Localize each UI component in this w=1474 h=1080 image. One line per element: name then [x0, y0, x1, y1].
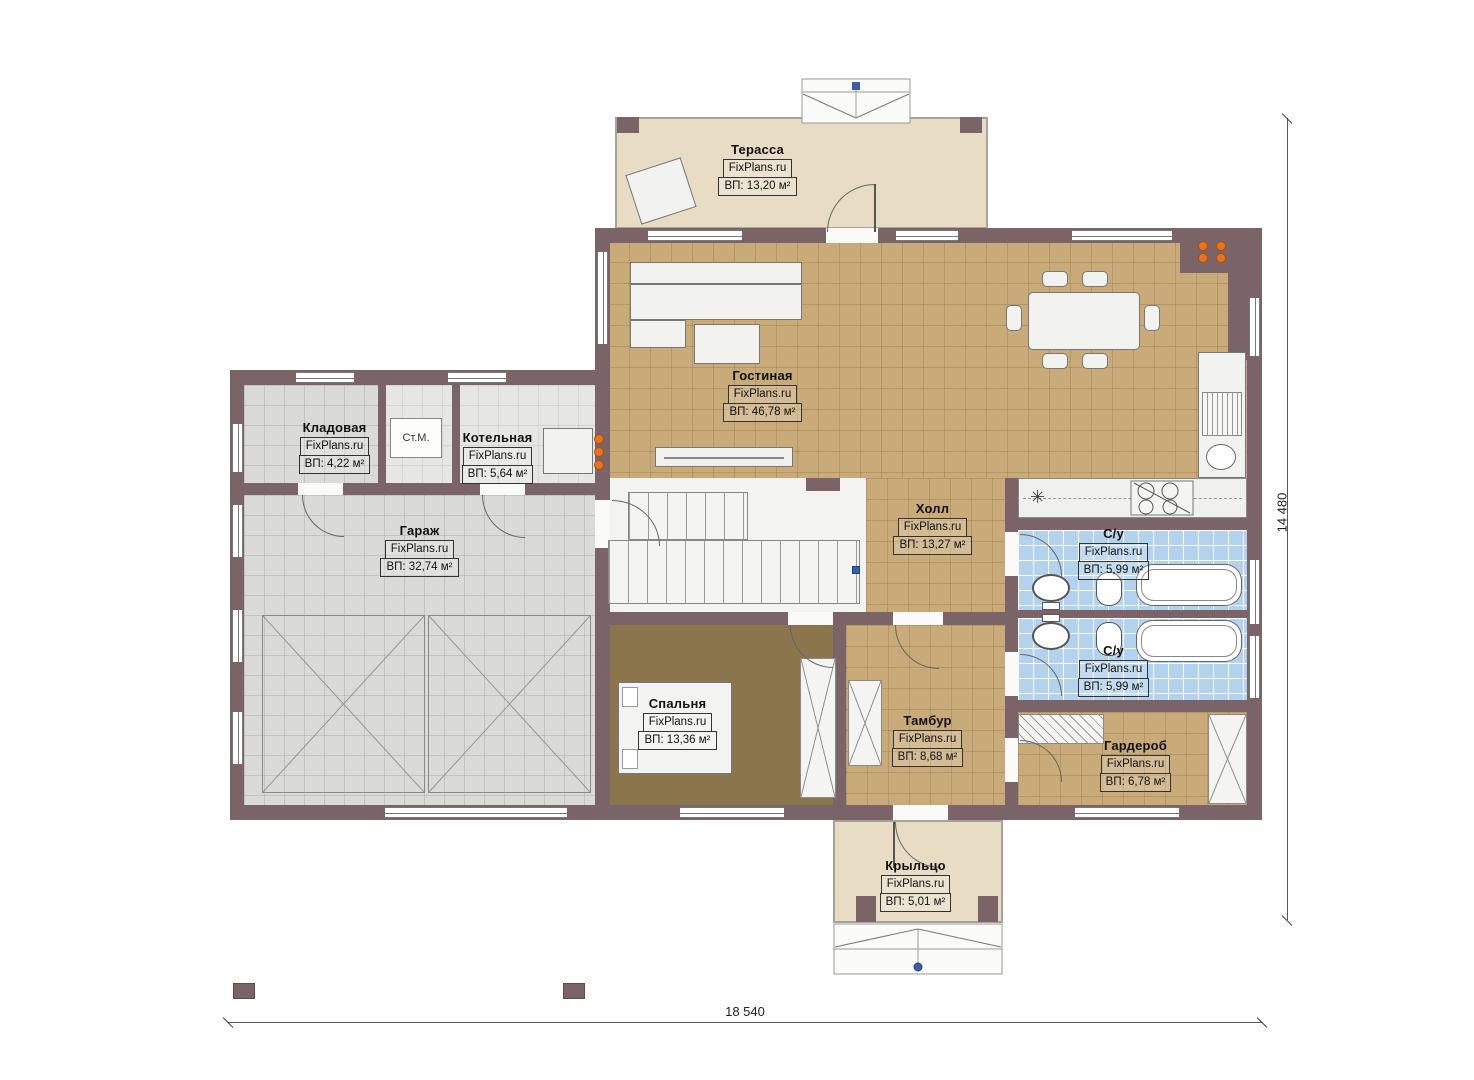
- room-name: Тамбур: [903, 713, 951, 728]
- window: [296, 372, 354, 383]
- area-box: ВП: 6,78 м²: [1100, 773, 1172, 792]
- dining-chair: [1042, 271, 1068, 287]
- window: [597, 252, 608, 344]
- wall-wardrobe-top: [1018, 700, 1247, 712]
- area-box: ВП: 46,78 м²: [723, 403, 801, 422]
- window: [448, 372, 506, 383]
- window: [648, 230, 742, 241]
- brand-box: FixPlans.ru: [1079, 543, 1149, 562]
- brand-box: FixPlans.ru: [463, 447, 533, 466]
- heating-dot: [594, 460, 604, 470]
- door-gap-entrance: [893, 805, 948, 820]
- room-label-living: Гостиная FixPlans.ru ВП: 46,78 м²: [700, 368, 825, 422]
- room-name: С/у: [1103, 643, 1124, 658]
- window: [1249, 560, 1260, 624]
- garage-spot-left: [262, 615, 425, 793]
- toilet-tank: [1042, 614, 1060, 622]
- area-box: ВП: 5,99 м²: [1078, 678, 1150, 697]
- porch-steps: [833, 923, 1003, 975]
- tv-console: [655, 447, 793, 467]
- area-box: ВП: 5,01 м²: [880, 893, 952, 912]
- window: [1072, 230, 1172, 241]
- door-gap-vestibule: [893, 612, 943, 625]
- dimension-width-label: 18 540: [228, 1004, 1262, 1019]
- terrace-steps: [801, 78, 911, 124]
- coffee-table: [694, 324, 760, 364]
- room-label-wc1: С/у FixPlans.ru ВП: 5,99 м²: [1056, 526, 1171, 580]
- room-name: Крыльцо: [885, 858, 946, 873]
- brand-box: FixPlans.ru: [723, 159, 793, 178]
- wall-living-stub: [806, 478, 840, 491]
- dining-chair: [1082, 353, 1108, 369]
- dimension-line-bottom: [228, 1022, 1262, 1023]
- window: [232, 505, 243, 557]
- room-label-vestibule: Тамбур FixPlans.ru ВП: 8,68 м²: [870, 713, 985, 767]
- room-name: Холл: [916, 501, 949, 516]
- wardrobe-cabinet: [1208, 714, 1247, 804]
- room-label-porch: Крыльцо FixPlans.ru ВП: 5,01 м²: [858, 858, 973, 912]
- garage-door: [385, 807, 567, 818]
- area-box: ВП: 8,68 м²: [892, 748, 964, 767]
- washing-machine-label: Ст.М.: [402, 432, 429, 444]
- wall-wing-top: [230, 370, 608, 385]
- dishwasher: [1202, 392, 1242, 436]
- dimension-height-label: 14 480: [1275, 483, 1290, 543]
- room-label-wardrobe: Гардероб FixPlans.ru ВП: 6,78 м²: [1078, 738, 1193, 792]
- terrace-post-right: [960, 117, 982, 133]
- terrace-post-left: [617, 117, 639, 133]
- room-label-hall: Холл FixPlans.ru ВП: 13,27 м²: [875, 501, 990, 555]
- dining-table: [1028, 292, 1140, 350]
- brand-box: FixPlans.ru: [898, 518, 968, 537]
- window: [232, 712, 243, 764]
- room-name: Гардероб: [1104, 738, 1167, 753]
- area-box: ВП: 13,27 м²: [893, 536, 971, 555]
- door-gap-wardrobe: [1005, 738, 1018, 782]
- area-box: ВП: 32,74 м²: [380, 558, 458, 577]
- room-label-wc2: С/у FixPlans.ru ВП: 5,99 м²: [1056, 643, 1171, 697]
- area-box: ВП: 13,36 м²: [638, 731, 716, 750]
- window: [232, 424, 243, 472]
- toilet-tank: [1042, 602, 1060, 610]
- brand-box: FixPlans.ru: [893, 730, 963, 749]
- bed-pillow: [622, 749, 638, 769]
- area-box: ВП: 4,22 м²: [299, 455, 371, 474]
- room-name: Гараж: [400, 523, 440, 538]
- porch-post-right: [978, 896, 998, 922]
- brand-box: FixPlans.ru: [300, 437, 370, 456]
- dining-chair: [1042, 353, 1068, 369]
- washing-machine: Ст.М.: [390, 418, 442, 458]
- brand-box: FixPlans.ru: [643, 713, 713, 732]
- window: [680, 807, 784, 818]
- door-gap-storage: [298, 483, 343, 495]
- room-label-storage: Кладовая FixPlans.ru ВП: 4,22 м²: [277, 420, 392, 474]
- chimney-dot: [1216, 253, 1226, 263]
- window: [1249, 636, 1260, 698]
- room-label-bedroom: Спальня FixPlans.ru ВП: 13,36 м²: [620, 696, 735, 750]
- window: [896, 230, 958, 241]
- stairs-direction-dot: [852, 566, 860, 574]
- chimney-dot: [1198, 241, 1208, 251]
- room-label-terrace: Терасса FixPlans.ru ВП: 13,20 м²: [695, 142, 820, 196]
- sofa-chaise: [630, 320, 686, 348]
- garage-spot-right: [428, 615, 591, 793]
- door-gap-wc1: [1005, 532, 1018, 576]
- chimney-dot: [1198, 253, 1208, 263]
- room-name: Гостиная: [732, 368, 792, 383]
- dining-chair: [1144, 305, 1160, 331]
- wall-garage-divider: [244, 483, 595, 495]
- room-label-garage: Гараж FixPlans.ru ВП: 32,74 м²: [362, 523, 477, 577]
- heating-dot: [594, 434, 604, 444]
- door-gap-boiler: [480, 483, 525, 495]
- bedroom-wardrobe: [800, 658, 836, 798]
- window: [232, 610, 243, 662]
- room-name: С/у: [1103, 526, 1124, 541]
- sink-symbol: ✳: [1030, 488, 1045, 506]
- room-name: Кладовая: [303, 420, 367, 435]
- room-name: Спальня: [649, 696, 707, 711]
- door-gap-bedroom: [788, 612, 833, 625]
- sofa-seat: [630, 284, 802, 320]
- brand-box: FixPlans.ru: [881, 875, 951, 894]
- dining-chair: [1082, 271, 1108, 287]
- kitchen-sink-basin: [1206, 444, 1236, 470]
- room-name: Терасса: [731, 142, 784, 157]
- door-leaf-terrace: [874, 184, 876, 232]
- chimney-dot: [1216, 241, 1226, 251]
- site-pillar-left: [233, 983, 255, 999]
- brand-box: FixPlans.ru: [1079, 660, 1149, 679]
- brand-box: FixPlans.ru: [1101, 755, 1171, 774]
- stairs-lower-flight: [608, 540, 860, 604]
- room-label-boiler: Котельная FixPlans.ru ВП: 5,64 м²: [440, 430, 555, 484]
- door-gap-wc2: [1005, 652, 1018, 696]
- window: [1075, 807, 1179, 818]
- site-pillar-right: [563, 983, 585, 999]
- brand-box: FixPlans.ru: [385, 540, 455, 559]
- area-box: ВП: 13,20 м²: [718, 177, 796, 196]
- area-box: ВП: 5,99 м²: [1078, 561, 1150, 580]
- heating-dot: [594, 447, 604, 457]
- window: [1249, 298, 1260, 356]
- sofa-back: [630, 262, 802, 284]
- floor-plan: ✳ Ст.М.: [0, 0, 1474, 1080]
- area-box: ВП: 5,64 м²: [462, 465, 534, 484]
- dining-chair: [1006, 305, 1022, 331]
- room-name: Котельная: [463, 430, 533, 445]
- brand-box: FixPlans.ru: [728, 385, 798, 404]
- stove-icon: [1130, 480, 1194, 516]
